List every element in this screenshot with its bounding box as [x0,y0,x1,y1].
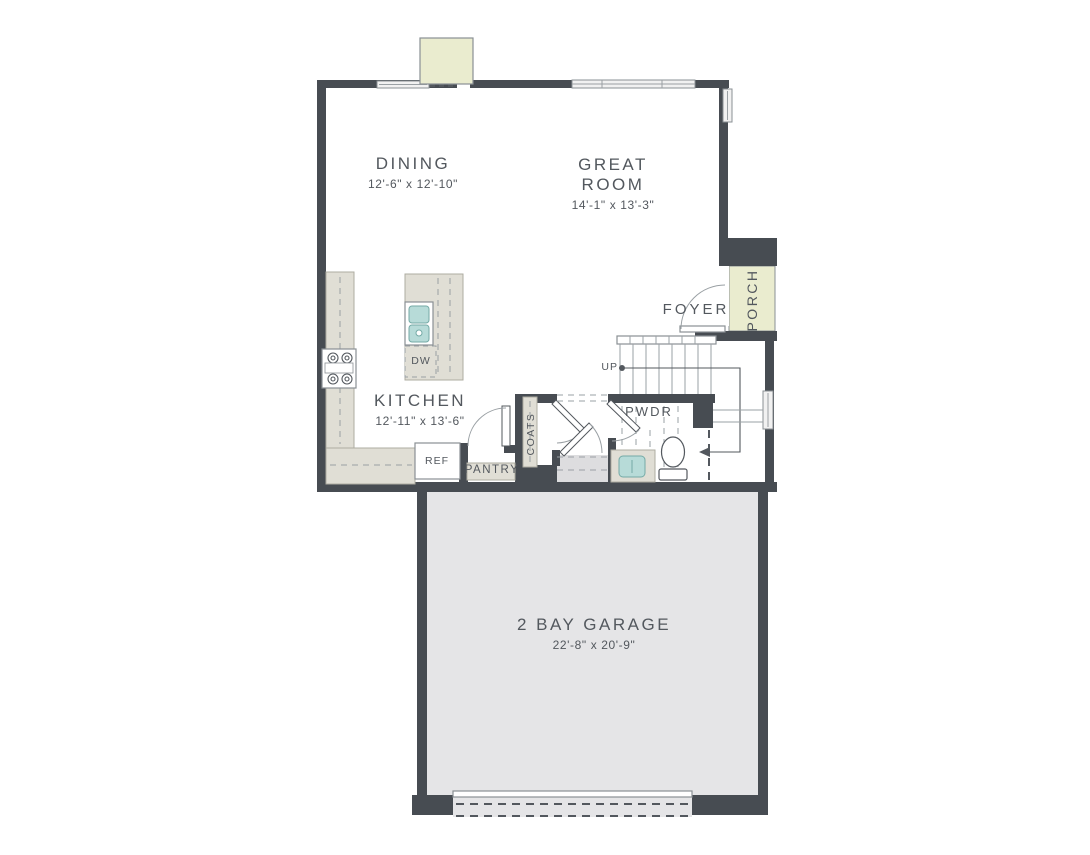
kitchen-dimensions: 12'-11" x 13'-6" [340,414,500,428]
coats-label: COATS [525,402,537,466]
garage-dimensions: 22'-8" x 20'-9" [474,638,714,652]
window-right-upper [723,89,732,122]
up-start-dot [619,365,625,371]
floor-plan-drawing [0,0,1090,855]
kitchen-name: KITCHEN [340,391,500,411]
dishwasher-label: DW [391,355,451,367]
window-right-lower [763,391,773,429]
pantry-door [502,406,510,446]
great-room-label: GREAT ROOM 14'-1" x 13'-3" [533,155,693,212]
garage-label: 2 BAY GARAGE 22'-8" x 20'-9" [474,615,714,652]
floor-plan: DINING 12'-6" x 12'-10" GREAT ROOM 14'-1… [0,0,1090,855]
great-room-dimensions: 14'-1" x 13'-3" [533,198,693,212]
range-stove [322,349,356,388]
refrigerator-label: REF [407,455,467,467]
dining-name: DINING [333,154,493,174]
island-sink [405,302,433,345]
dining-label: DINING 12'-6" x 12'-10" [333,154,493,191]
front-door [680,266,729,332]
great-room-name: GREAT ROOM [567,155,659,195]
patio-box [420,38,473,84]
stairs-up-label: UP [594,361,618,373]
coats-door [552,400,586,434]
garage-entry-landing [557,455,608,483]
garage-name: 2 BAY GARAGE [474,615,714,635]
powder-room-label: PWDR [609,404,689,419]
garage-floor [427,492,758,817]
foyer-label: FOYER [656,301,736,318]
dining-dimensions: 12'-6" x 12'-10" [333,177,493,191]
kitchen-label: KITCHEN 12'-11" x 13'-6" [340,391,500,428]
window-top-right [572,80,695,88]
porch-label: PORCH [744,260,760,340]
toilet-icon [659,437,687,480]
